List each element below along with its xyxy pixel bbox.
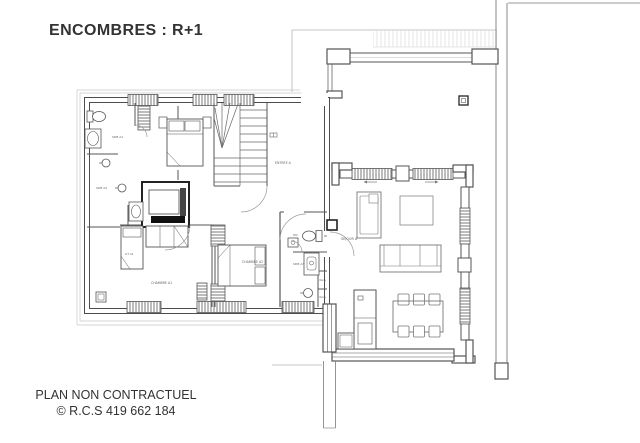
coffee-table (400, 196, 433, 225)
plan-sheet: ENCOMBRES : R+1 (0, 0, 640, 443)
kitchen-tall-unit (338, 290, 376, 349)
label-rang-bottom: Rang. (320, 296, 327, 299)
label-lit-a1: LIT A1 (125, 252, 134, 256)
label-rang-top: Rang. (320, 279, 327, 282)
label-chambre-a2: CHAMBRE A2 (242, 260, 263, 264)
label-entree-a: ENTREE A (275, 161, 292, 165)
site-boundary-lines (495, 0, 640, 379)
staircase (214, 103, 277, 186)
footer-line-2: © R.C.S 419 662 184 (0, 403, 232, 419)
floor-plan: SDB A1 SDB A2 ENTREE A LIT A1 CHAMBRE A1… (0, 0, 640, 443)
single-bed-and-wardrobe (96, 226, 188, 302)
label-sdb-a2: SDB A2 (96, 186, 107, 190)
footer-line-1: PLAN NON CONTRACTUEL (0, 387, 232, 403)
chaise-longue (357, 192, 381, 238)
dining-table-and-chairs (393, 294, 443, 337)
label-wc: WC (293, 233, 298, 237)
terrace-parapet (327, 49, 498, 105)
double-bed-chambre-a2 (218, 245, 266, 286)
label-sdb-a3: SDB A3 (293, 262, 304, 266)
footer-disclaimer: PLAN NON CONTRACTUEL © R.C.S 419 662 184 (0, 387, 232, 419)
bathroom-fixtures (85, 111, 143, 221)
double-bed-top (159, 117, 211, 166)
label-sejour-a: SEJOUR A (341, 237, 358, 241)
label-chambre-a1: CHAMBRE A1 (151, 281, 172, 285)
lower-structure-lines (272, 361, 336, 428)
elevator (142, 182, 189, 227)
sofa (380, 245, 441, 272)
living-room-furniture (338, 192, 443, 349)
label-sdb-a1: SDB A1 (112, 135, 123, 139)
interior-walls (87, 103, 327, 307)
